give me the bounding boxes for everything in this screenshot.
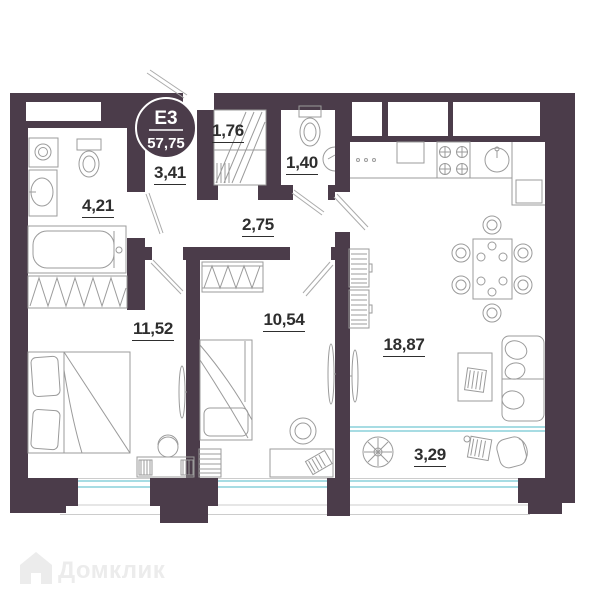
wc-door <box>294 190 324 212</box>
bathtub <box>28 226 126 273</box>
unit-badge-area: 57,75 <box>147 135 185 152</box>
room-label-bathroom: 4,21 <box>82 196 114 215</box>
room-label-storage: 1,76 <box>212 121 244 140</box>
dining-table <box>473 239 512 299</box>
facade-lines <box>28 479 545 515</box>
single-bed <box>200 340 252 440</box>
kitchen-cabinet <box>397 142 424 163</box>
duct-niche <box>26 102 101 121</box>
bathroom-toilet <box>77 139 101 177</box>
room-label-living-kitchen: 18,87 <box>383 335 424 354</box>
floor-plan-page: Е3 57,75 1,76 3,41 1,40 4,21 2,75 11,52 … <box>0 0 600 600</box>
desk-bedroom1 <box>137 435 194 477</box>
bookshelf <box>349 249 372 328</box>
stove <box>437 142 470 178</box>
house-icon <box>20 552 52 584</box>
bedroom2-door <box>303 262 330 293</box>
bedroom2-door <box>306 265 333 296</box>
room-label-balcony: 3,29 <box>414 445 446 464</box>
balcony-armchair <box>495 434 531 470</box>
tv-bedroom1 <box>179 366 187 418</box>
radiator-bedroom2 <box>199 449 221 477</box>
living-window-3 <box>453 102 540 136</box>
bedroom1-door <box>153 260 183 291</box>
room-label-bedroom-2: 10,54 <box>263 310 305 329</box>
living-window-1 <box>352 102 382 136</box>
bathroom-door <box>149 193 163 233</box>
wc-toilet <box>299 106 321 146</box>
floor-plan: Е3 57,75 1,76 3,41 1,40 4,21 2,75 11,52 … <box>0 0 600 600</box>
watermark-text: Домклик <box>58 557 166 584</box>
balcony-side-table <box>464 436 492 461</box>
wardrobe-hatch-strip <box>28 276 127 308</box>
room-label-wc: 1,40 <box>286 153 318 172</box>
unit-badge: Е3 57,75 <box>136 98 196 158</box>
fridge <box>516 180 542 203</box>
entry-door <box>150 70 187 95</box>
kitchen-door <box>334 197 365 230</box>
dining-chairs <box>452 216 532 322</box>
room-label-bedroom-1: 11,52 <box>133 319 173 338</box>
bathroom-sink <box>29 170 57 216</box>
bedroom1-door <box>151 263 181 294</box>
living-window-2 <box>388 102 448 136</box>
kitchen-door <box>337 194 368 227</box>
kitchen-sink <box>485 147 509 172</box>
wc-sink <box>323 147 335 171</box>
double-bed <box>28 352 130 453</box>
tv-bedroom2 <box>328 344 336 404</box>
unit-badge-code: Е3 <box>154 108 177 129</box>
watermark: Домклик <box>20 552 166 584</box>
bathroom-door <box>146 194 160 234</box>
desk-bedroom2 <box>270 418 333 477</box>
plant <box>363 437 393 467</box>
room-label-corridor: 2,75 <box>242 215 274 234</box>
coffee-table <box>458 353 492 401</box>
wardrobe-bedroom2 <box>202 262 263 292</box>
sofa <box>501 336 544 421</box>
room-label-hallway: 3,41 <box>154 163 186 182</box>
wc-door <box>292 193 322 215</box>
tv-living <box>350 350 358 402</box>
washing-machine <box>29 138 58 167</box>
